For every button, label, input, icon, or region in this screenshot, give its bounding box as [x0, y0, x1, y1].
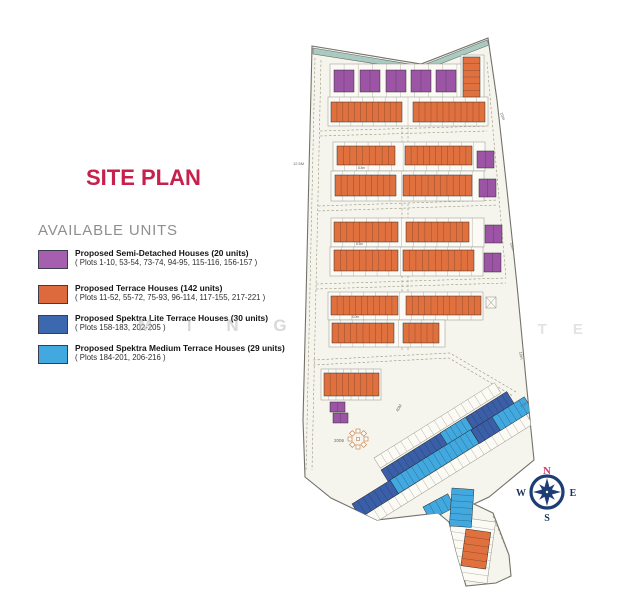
plot-block-terrace [463, 57, 480, 97]
plot-block-terrace [403, 323, 439, 343]
compass-east-label: E [570, 488, 577, 499]
plot-block-semi [436, 70, 456, 92]
plot-block-terrace [413, 102, 485, 122]
plot-block-terrace [406, 296, 481, 315]
map-label: 8.5m [358, 166, 365, 170]
plot-block-terrace [332, 323, 394, 343]
plot-block-terrace [405, 146, 472, 165]
compass-north-label: N [543, 465, 551, 477]
plot-block-medium [449, 488, 474, 527]
plot-block-semi [360, 70, 380, 92]
compass-rose: N E S W [516, 465, 577, 524]
plot-block-terrace [461, 529, 491, 569]
plot-block-semi [334, 70, 354, 92]
map-label: 12.5M [293, 161, 304, 166]
compass-west-label: W [516, 488, 526, 499]
plot-block-terrace [406, 222, 469, 242]
plot-block-terrace [403, 175, 472, 196]
map-label: 10m [499, 112, 507, 122]
plot-block-terrace [331, 102, 402, 122]
map-label: 2006 [334, 438, 345, 443]
site-plan-map: 12.5M10m10m10m40M7.0m20068.5m8.5m6.0m N … [0, 0, 634, 600]
plot-block-semi [386, 70, 406, 92]
plot-block-semi [485, 225, 502, 243]
compass-center [546, 491, 548, 493]
plot-block-terrace [337, 146, 395, 165]
plot-block-semi [411, 70, 431, 92]
map-label: 8.5m [356, 242, 363, 246]
utility-square [486, 297, 496, 308]
plot-block-terrace [324, 373, 379, 396]
plot-block-terrace [403, 250, 474, 271]
plot-block-semi [484, 253, 501, 272]
plot-block-terrace [331, 296, 398, 315]
plot-block-terrace [335, 175, 396, 196]
roundabout-2006 [348, 429, 368, 449]
plot-block-terrace [334, 250, 398, 271]
plot-block-semi [333, 413, 348, 423]
plot-block-terrace [334, 222, 398, 242]
plot-block-semi [479, 179, 496, 197]
compass-south-label: S [544, 513, 550, 524]
plot-block-semi [477, 151, 494, 168]
plot-block-semi [330, 402, 345, 412]
site-plan-page: SITE PLAN AVAILABLE UNITS Proposed Semi-… [0, 0, 634, 600]
map-label: 6.0m [352, 315, 359, 319]
